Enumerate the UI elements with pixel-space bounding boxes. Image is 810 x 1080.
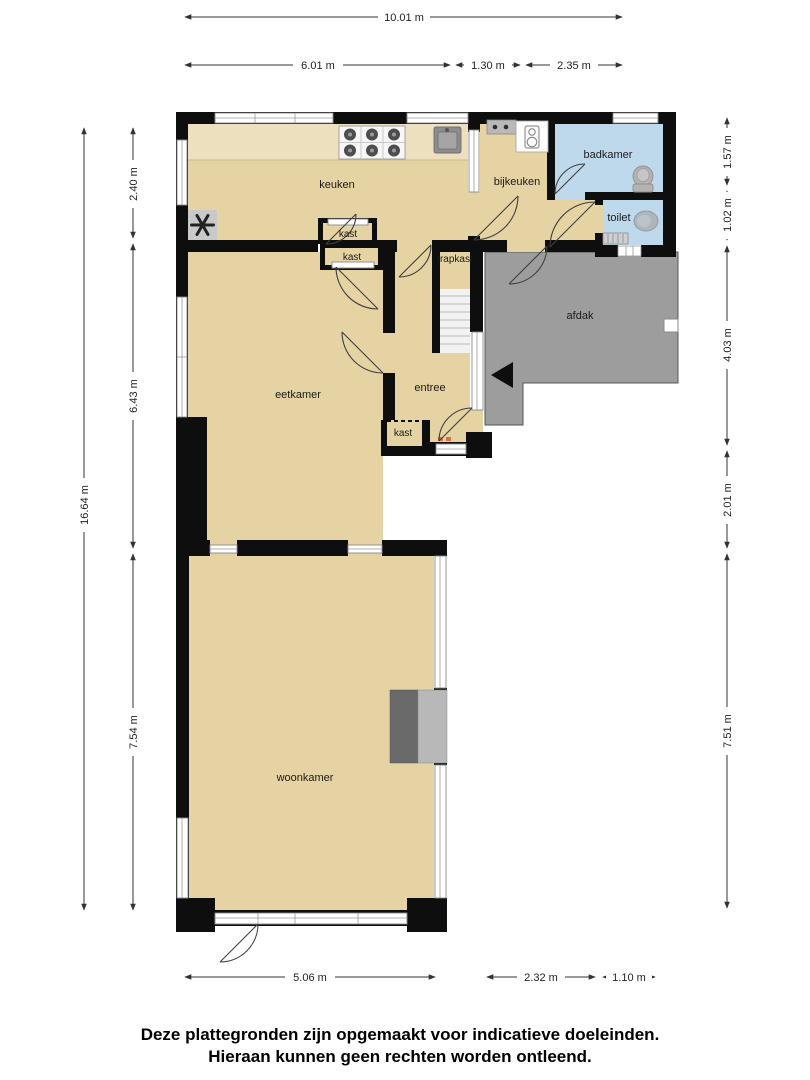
- disclaimer-line-1: Deze plattegronden zijn opgemaakt voor i…: [141, 1025, 660, 1044]
- svg-text:1.10 m: 1.10 m: [612, 972, 646, 984]
- room-label-kast-entree: kast: [394, 428, 413, 439]
- floorplan-drawing: keuken bijkeuken badkamer toilet kast ka…: [0, 0, 810, 1080]
- room-label-eetkamer: eetkamer: [275, 389, 321, 401]
- dimension-top-1: 6.01 m: [185, 58, 450, 72]
- room-label-kast-keuken: kast: [339, 229, 358, 240]
- svg-text:5.06 m: 5.06 m: [293, 972, 327, 984]
- dimension-right-1: 1.57 m: [720, 118, 734, 185]
- room-label-toilet: toilet: [607, 212, 630, 224]
- svg-text:2.32 m: 2.32 m: [524, 972, 558, 984]
- room-label-entree: entree: [414, 382, 445, 394]
- room-label-bijkeuken: bijkeuken: [494, 176, 540, 188]
- dimension-right-5: 7.51 m: [720, 554, 734, 908]
- fireplace-icon: [390, 690, 447, 763]
- dimension-left-3: 7.54 m: [126, 554, 140, 910]
- svg-text:7.54 m: 7.54 m: [128, 715, 140, 749]
- dimension-top-3: 2.35 m: [526, 58, 622, 72]
- dimension-top-2: 1.30 m: [456, 58, 520, 72]
- dimension-bottom-1: 5.06 m: [185, 970, 435, 984]
- door-gap: [397, 240, 432, 252]
- room-label-trapkast: trapkast: [437, 254, 473, 265]
- svg-text:1.57 m: 1.57 m: [722, 135, 734, 169]
- kitchen-counter: [188, 124, 468, 160]
- meter-box-icon: [664, 319, 678, 332]
- dimension-right-4: 2.01 m: [720, 451, 734, 548]
- dimension-bottom-3: 1.10 m: [603, 970, 655, 984]
- svg-text:6.43 m: 6.43 m: [128, 379, 140, 413]
- dimension-top-total: 10.01 m: [185, 10, 622, 24]
- svg-text:7.51 m: 7.51 m: [722, 714, 734, 748]
- hand-basin-radiator-icon: [603, 233, 628, 244]
- stove-icon: [339, 126, 405, 159]
- washing-machine-icon: [516, 121, 548, 152]
- svg-text:10.01 m: 10.01 m: [384, 12, 424, 24]
- sink-icon: [434, 127, 461, 153]
- disclaimer-line-2: Hieraan kunnen geen rechten worden ontle…: [208, 1047, 592, 1066]
- svg-text:16.64 m: 16.64 m: [79, 485, 91, 525]
- room-label-afdak: afdak: [567, 310, 594, 322]
- dimension-left-total: 16.64 m: [77, 128, 91, 910]
- bijkeuken-counter-icon: [487, 120, 516, 134]
- svg-text:2.40 m: 2.40 m: [128, 167, 140, 201]
- dimension-right-3: 4.03 m: [720, 246, 734, 445]
- dimension-left-2: 6.43 m: [126, 244, 140, 548]
- room-label-badkamer: badkamer: [584, 149, 633, 161]
- toilet-bowl-icon: [634, 211, 658, 231]
- svg-text:2.01 m: 2.01 m: [722, 483, 734, 517]
- door-gap: [383, 333, 395, 373]
- dimension-bottom-2: 2.32 m: [487, 970, 595, 984]
- door-gap: [507, 240, 545, 252]
- door-gap: [555, 192, 585, 200]
- room-label-keuken: keuken: [319, 179, 354, 191]
- door-gap: [595, 205, 603, 233]
- svg-text:6.01 m: 6.01 m: [301, 60, 335, 72]
- svg-text:1.30 m: 1.30 m: [471, 60, 505, 72]
- floorplan-page: keuken bijkeuken badkamer toilet kast ka…: [0, 0, 810, 1080]
- room-afdak-floor: [485, 252, 678, 425]
- room-eetkamer-floor: [188, 252, 383, 553]
- toilet-badkamer-icon: [633, 166, 653, 192]
- dimension-left-1: 2.40 m: [126, 128, 140, 238]
- room-label-kast-eetkamer: kast: [343, 252, 362, 263]
- extractor-fan-icon: [188, 210, 217, 240]
- svg-text:4.03 m: 4.03 m: [722, 328, 734, 362]
- vent-icon: [618, 246, 641, 256]
- door-gap: [468, 192, 480, 236]
- stairs: [440, 289, 470, 353]
- svg-text:1.02 m: 1.02 m: [722, 198, 734, 232]
- room-label-woonkamer: woonkamer: [276, 772, 334, 784]
- svg-text:2.35 m: 2.35 m: [557, 60, 591, 72]
- dimension-right-2: 1.02 m: [720, 191, 734, 240]
